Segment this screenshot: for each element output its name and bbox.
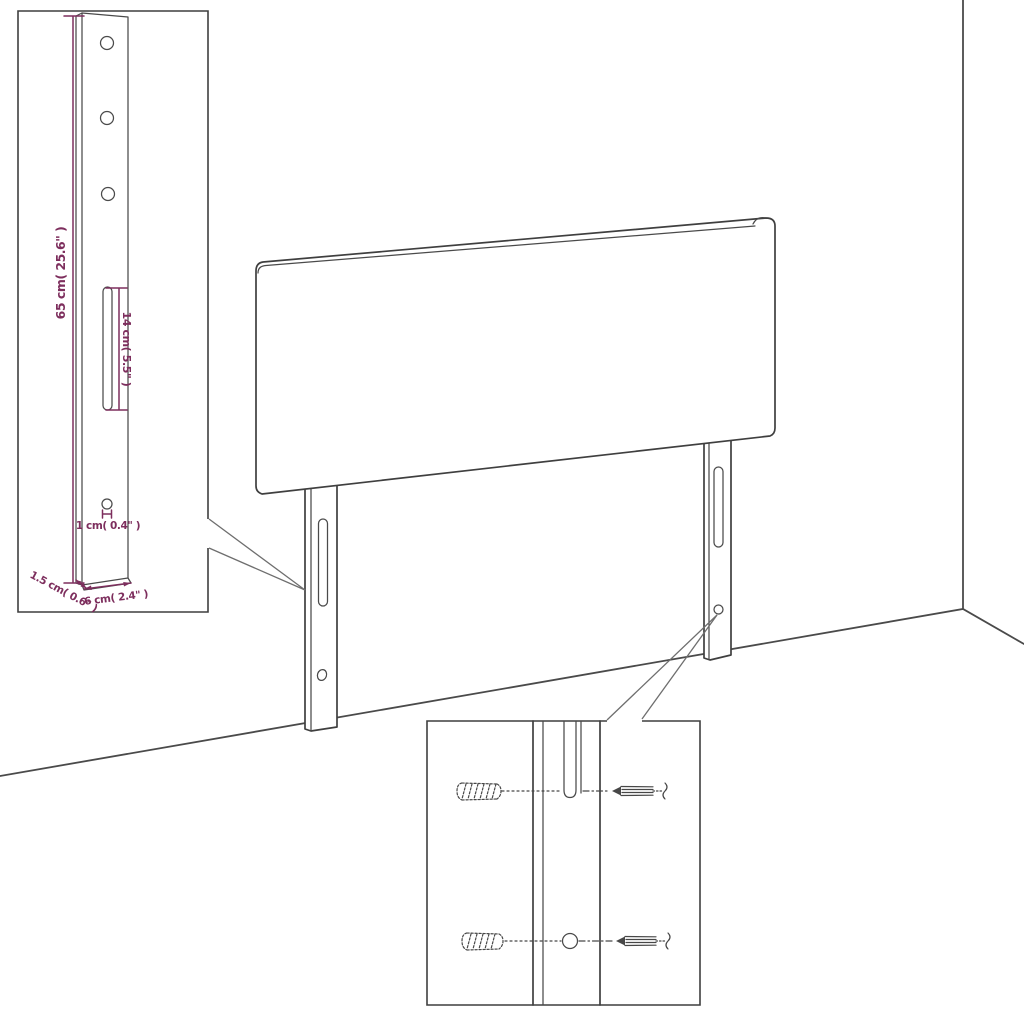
headboard-panel bbox=[256, 218, 775, 494]
diagram-canvas: 65 cm( 25.6" ) 14 cm( 5.5" ) 1 cm( 0.4" … bbox=[0, 0, 1024, 1024]
inset-bracket-detail: 65 cm( 25.6" ) 14 cm( 5.5" ) 1 cm( 0.4" … bbox=[18, 11, 208, 615]
callout-wedge-left bbox=[209, 519, 305, 590]
dimension-height-label: 65 cm( 25.6" ) bbox=[53, 227, 68, 320]
inset-screw-detail bbox=[427, 721, 700, 1005]
headboard-diagram: 65 cm( 25.6" ) 14 cm( 5.5" ) 1 cm( 0.4" … bbox=[0, 0, 1024, 1024]
dimension-slot-label: 14 cm( 5.5" ) bbox=[120, 312, 133, 387]
dimension-hole-label: 1 cm( 0.4" ) bbox=[76, 520, 140, 532]
left-leg bbox=[305, 470, 337, 731]
